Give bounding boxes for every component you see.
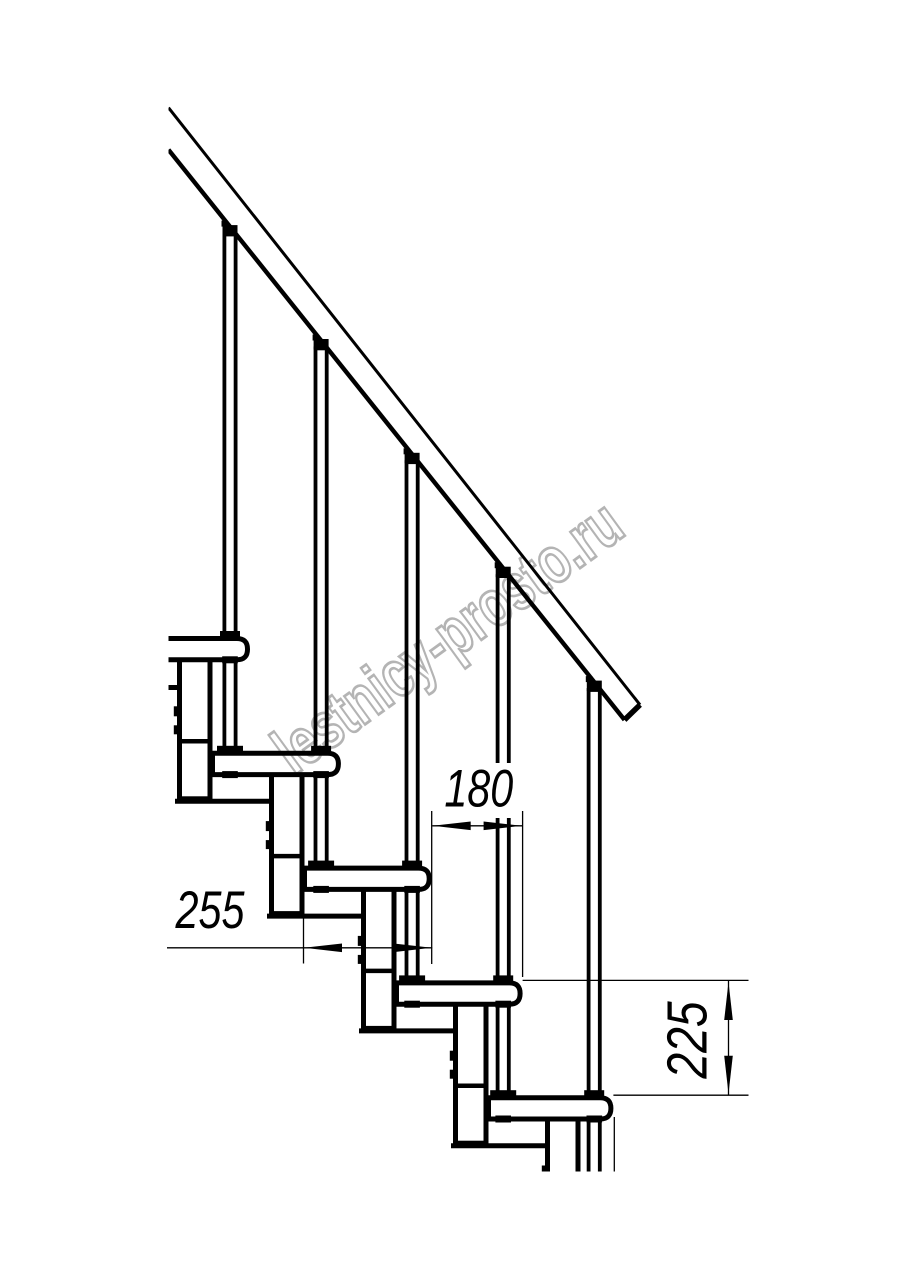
svg-text:180: 180 — [444, 760, 513, 819]
svg-text:225: 225 — [655, 1001, 718, 1079]
svg-text:255: 255 — [175, 881, 245, 940]
